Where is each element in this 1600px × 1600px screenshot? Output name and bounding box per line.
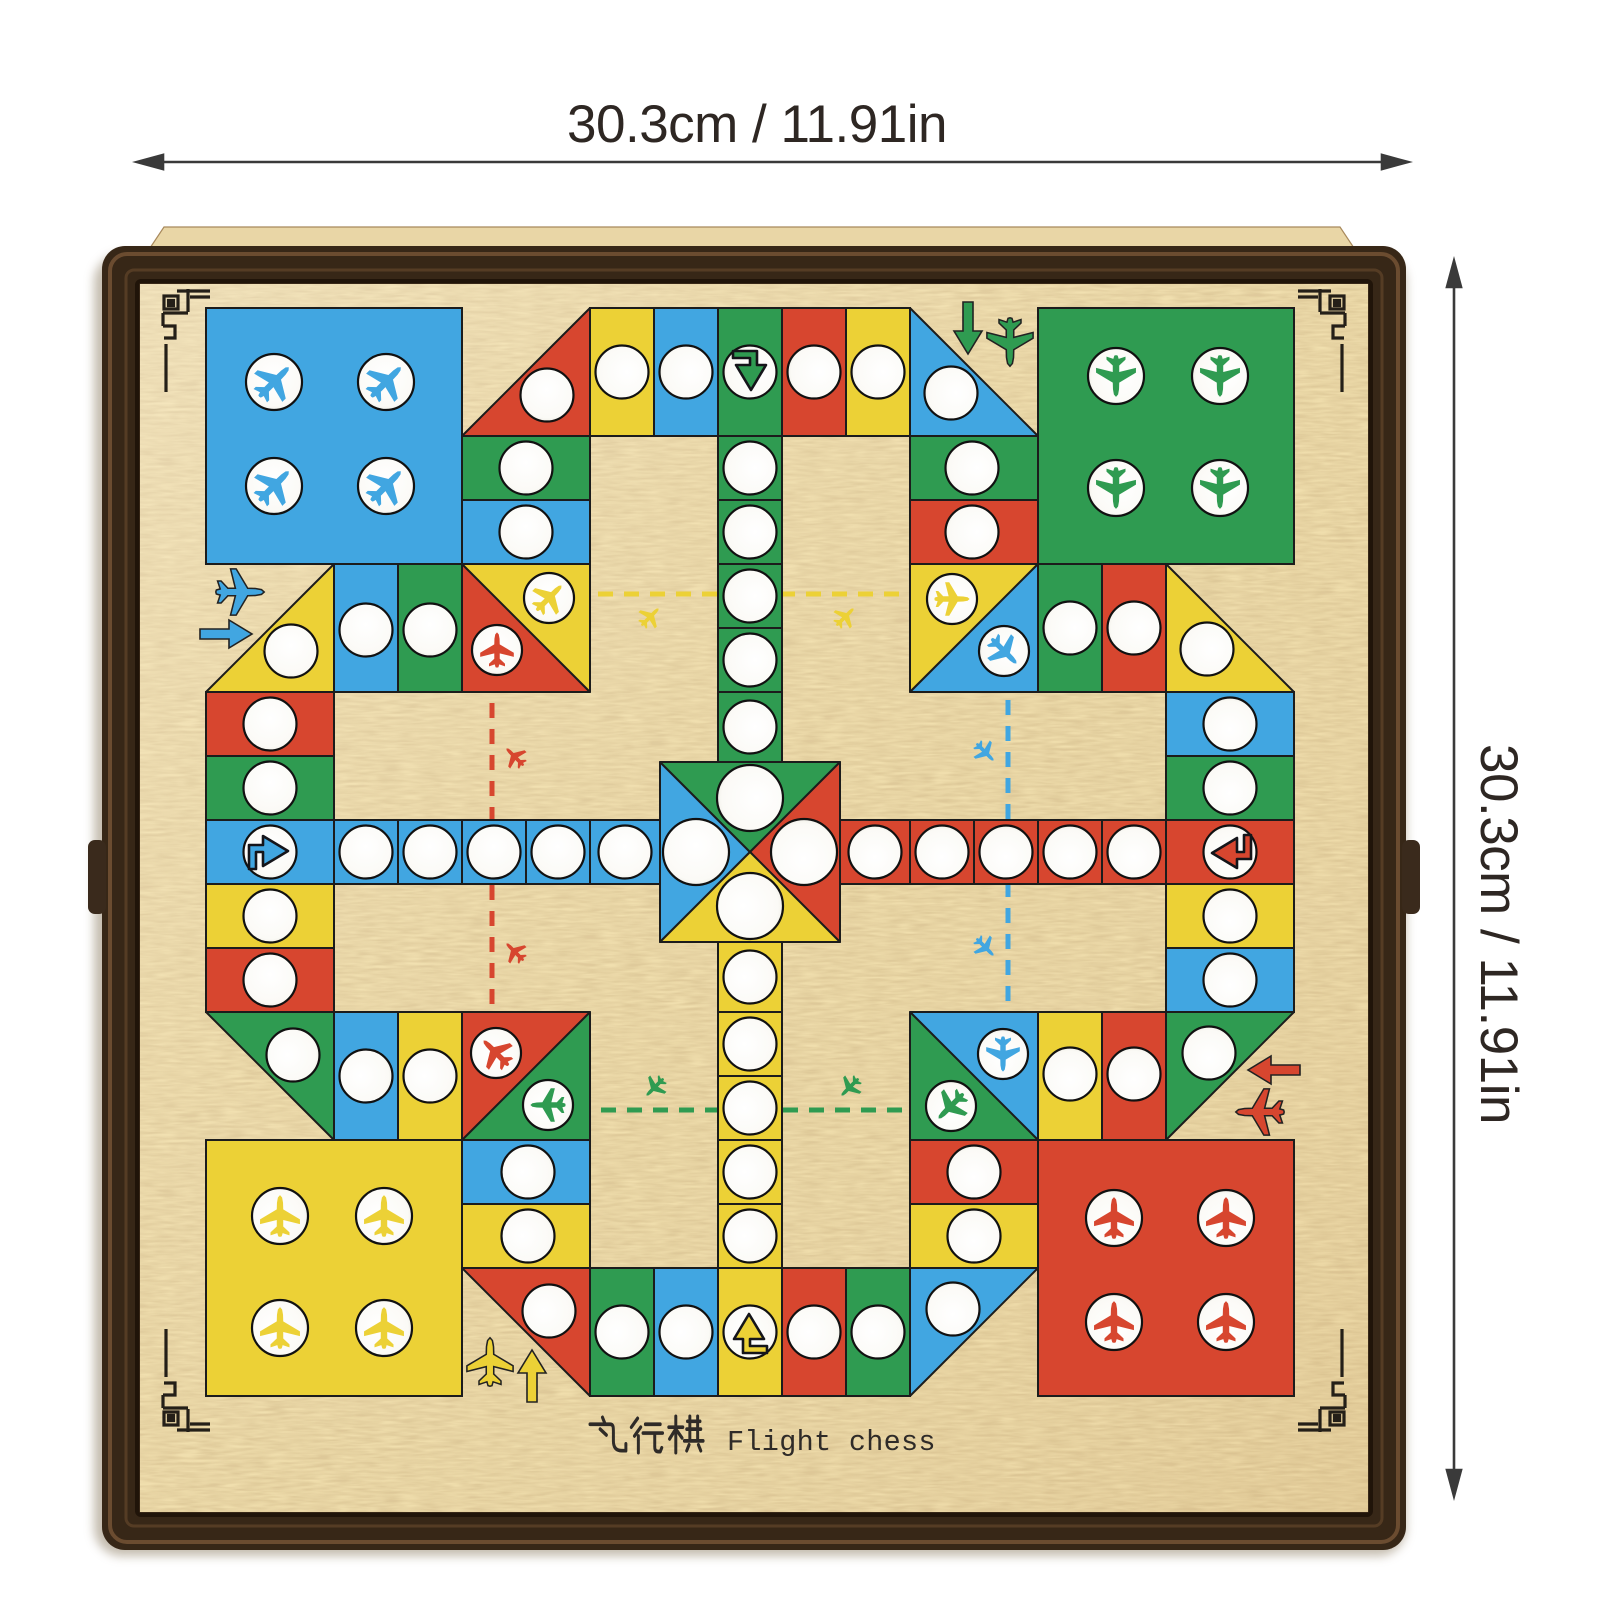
svg-text:30.3cm / 11.91in: 30.3cm / 11.91in: [567, 95, 947, 154]
svg-text:30.3cm / 11.91in: 30.3cm / 11.91in: [1469, 744, 1528, 1124]
svg-text:Flight chess: Flight chess: [727, 1426, 936, 1459]
